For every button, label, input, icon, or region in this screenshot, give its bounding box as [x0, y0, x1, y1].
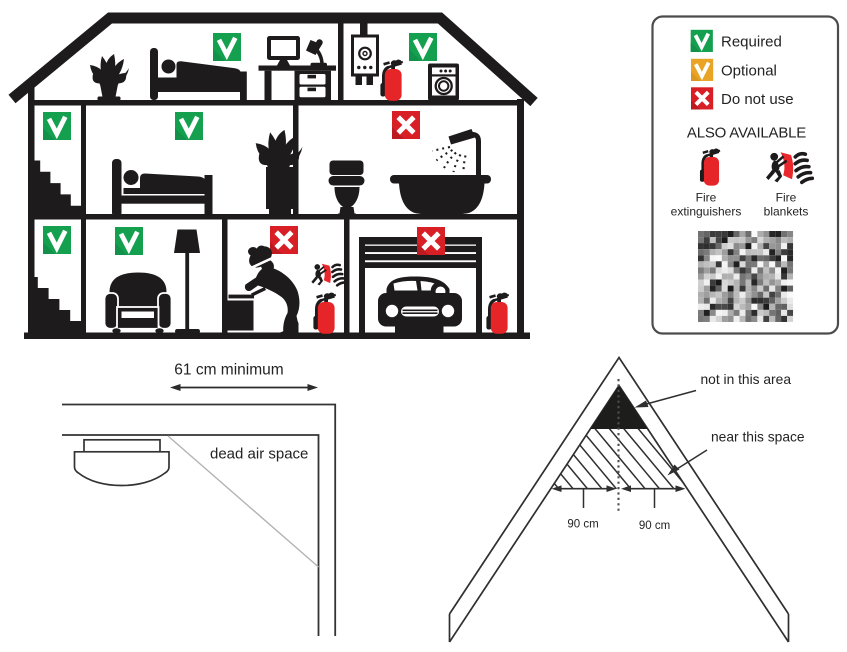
- svg-text:extinguishers: extinguishers: [671, 205, 742, 219]
- svg-text:90 cm: 90 cm: [639, 520, 670, 532]
- svg-text:Required: Required: [721, 33, 782, 50]
- svg-text:blankets: blankets: [764, 205, 809, 219]
- svg-text:near this space: near this space: [711, 430, 805, 445]
- svg-text:Optional: Optional: [721, 62, 777, 79]
- svg-text:dead air space: dead air space: [210, 446, 308, 463]
- svg-text:Fire: Fire: [696, 191, 717, 205]
- svg-text:not in this area: not in this area: [701, 372, 792, 387]
- svg-text:Do not use: Do not use: [721, 91, 794, 108]
- svg-text:ALSO AVAILABLE: ALSO AVAILABLE: [687, 125, 806, 142]
- svg-text:61 cm minimum: 61 cm minimum: [174, 362, 283, 379]
- svg-text:90 cm: 90 cm: [567, 519, 598, 531]
- svg-text:Fire: Fire: [776, 191, 797, 205]
